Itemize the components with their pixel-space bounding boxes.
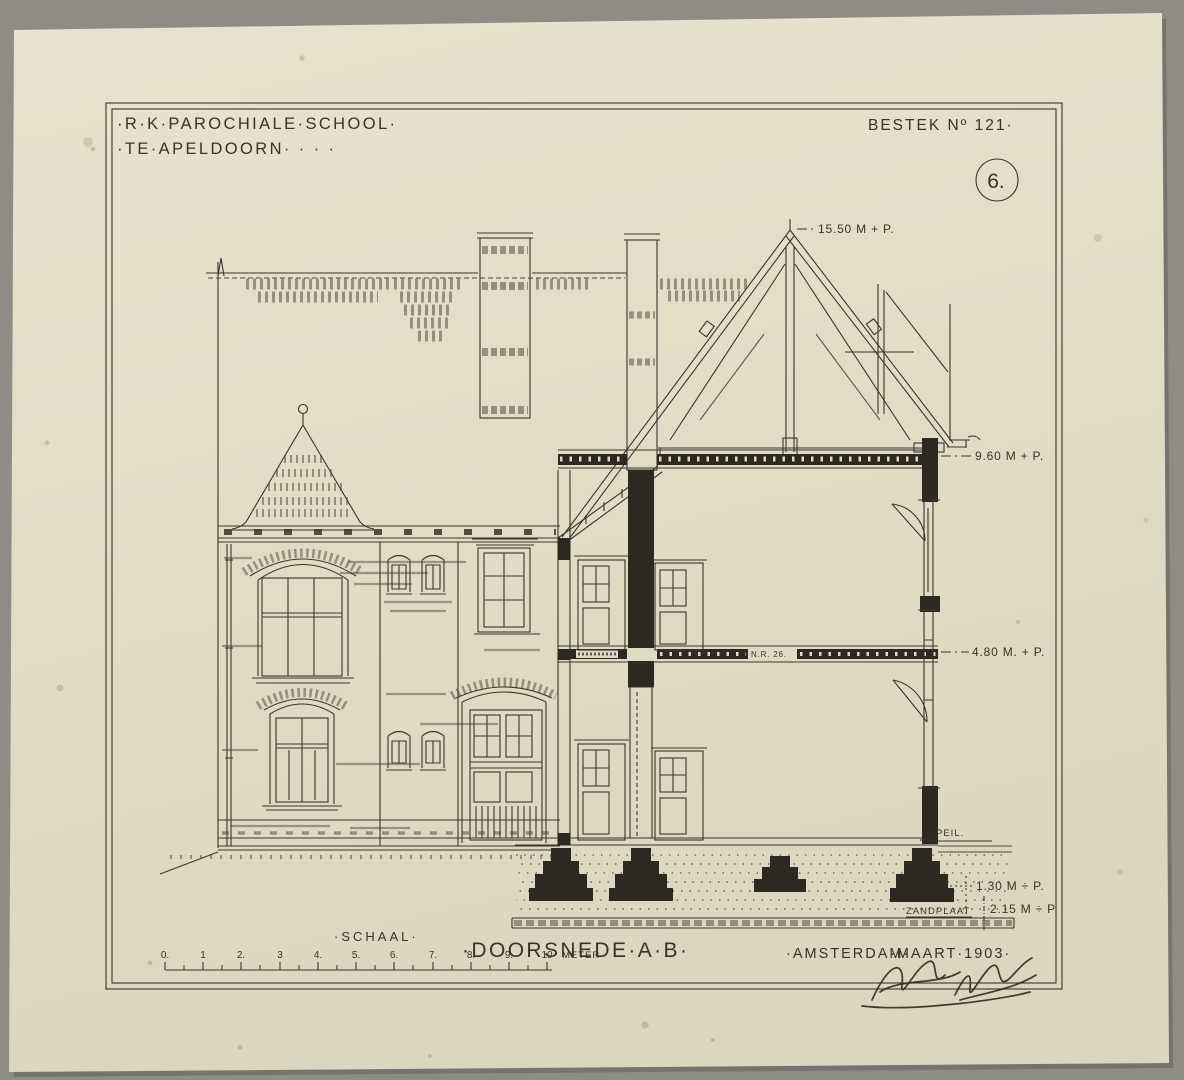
meter-label: METER (562, 950, 600, 961)
scale-tick-7: 7. (429, 950, 437, 961)
peil-label: PEIL. (936, 828, 964, 839)
ridge-height-label: 15.50 M + P. (818, 222, 894, 236)
scale-tick-8: 8. (467, 950, 475, 961)
scale-tick-10: 10 (541, 950, 553, 961)
drawing-sheet-svg: ·R·K·PAROCHIALE·SCHOOL· ·TE·APELDOORN· ·… (0, 0, 1184, 1080)
zandplaat-depth-label: 2.15 M ÷ P. (990, 902, 1059, 916)
scale-tick-9: 9. (505, 950, 513, 961)
attic-level-label: 9.60 M + P. (975, 449, 1044, 463)
project-title-line1: ·R·K·PAROCHIALE·SCHOOL· (117, 115, 397, 133)
floor-level-label: 4.80 M. + P. (972, 645, 1045, 659)
scale-tick-1: 1 (200, 950, 206, 961)
beam-mark-label: N.R. 26. (751, 650, 787, 659)
scale-tick-3: 3 (277, 950, 283, 961)
scale-tick-4: 4. (314, 950, 322, 961)
zandplaat-label: ZANDPLAAT (906, 906, 970, 917)
photo-backdrop: ·R·K·PAROCHIALE·SCHOOL· ·TE·APELDOORN· ·… (0, 0, 1184, 1080)
foundation-depth-label: 1.30 M ÷ P. (976, 879, 1045, 893)
sheet-number: 6. (987, 170, 1005, 193)
scale-tick-0: 0. (161, 950, 169, 961)
bestek-number: BESTEK Nº 121· (868, 117, 1014, 134)
scale-tick-2: 2. (237, 950, 245, 961)
scale-tick-6: 6. (390, 950, 398, 961)
scale-tick-5: 5. (352, 950, 360, 961)
project-title-line2: ·TE·APELDOORN· · · · (117, 140, 336, 158)
beam-stamp-left (576, 650, 618, 658)
date-label: ·MAART·1903· (890, 946, 1011, 962)
schaal-label: ·SCHAAL· (334, 929, 419, 944)
